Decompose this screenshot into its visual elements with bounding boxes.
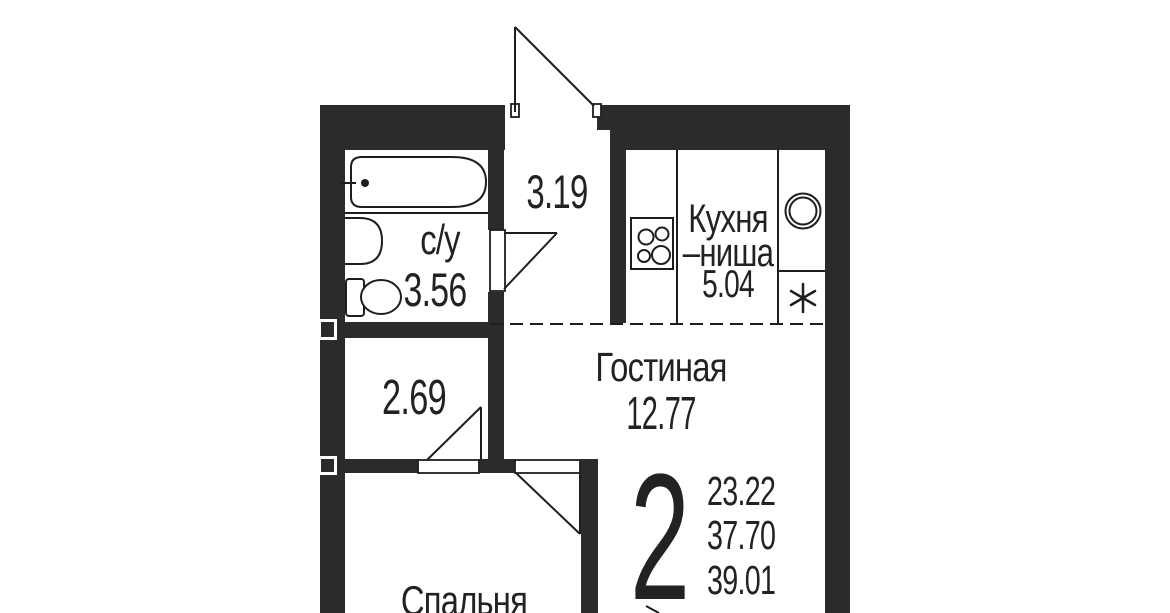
living-room-label: Гостиная — [595, 343, 726, 389]
bathroom-label: с/у — [420, 216, 460, 263]
stove-burner-icon — [652, 246, 670, 264]
hallway-area: 3.19 — [526, 165, 587, 218]
wall-corridor-bottom-a — [336, 459, 418, 473]
bathroom-door-swing — [504, 233, 557, 289]
kitchen-sink-icon-inner — [790, 198, 817, 225]
wall-left-exterior — [320, 105, 345, 613]
corridor-door-opening — [418, 460, 479, 473]
washing-machine-icon — [791, 284, 815, 312]
apartment-area: 37.70 — [707, 513, 775, 558]
bathtub-icon — [351, 157, 486, 207]
stove-burner-icon — [656, 228, 669, 241]
bedroom-door-opening — [515, 460, 580, 473]
bedroom-door-swing — [516, 473, 580, 534]
toilet-bowl-icon — [361, 280, 401, 314]
kitchen-area: 5.04 — [702, 263, 754, 307]
floorplan-drawing: с/у 3.56 3.19 Кухня –ниша 5.04 Гостиная … — [0, 0, 1170, 613]
stove-burner-icon — [639, 230, 654, 245]
washbasin-icon — [345, 218, 382, 264]
apartment-summary: 2 23.22 37.70 39.01 — [630, 438, 775, 613]
bathroom-door-opening — [490, 230, 505, 291]
wall-kitchen-left — [610, 128, 626, 323]
wall-bedroom-right — [581, 459, 598, 613]
stove-burner-icon — [638, 250, 650, 262]
rooms-count: 2 — [630, 438, 689, 613]
living-area-total: 23.22 — [707, 469, 775, 514]
wall-bathroom-bottom — [336, 322, 504, 338]
bathtub-drain-icon — [361, 179, 369, 187]
wall-joint-block — [321, 322, 334, 337]
entrance-door-swing — [515, 27, 594, 106]
wall-top-left — [320, 105, 505, 150]
wall-corridor-bottom-b — [479, 459, 515, 473]
wall-right-exterior — [825, 105, 850, 613]
wall-top-right-thick — [610, 105, 850, 150]
living-room-area: 12.77 — [626, 388, 695, 439]
bathroom-area: 3.56 — [404, 264, 467, 317]
wall-bathroom-right-lower — [488, 292, 504, 462]
corridor-area: 2.69 — [382, 370, 446, 424]
total-area: 39.01 — [707, 558, 775, 603]
wall-joint-block — [321, 459, 334, 472]
entrance-door-jamb-right — [593, 104, 601, 117]
wall-bathroom-right-upper — [488, 150, 504, 230]
bedroom-label: Спальня — [401, 577, 527, 613]
floorplan-canvas: с/у 3.56 3.19 Кухня –ниша 5.04 Гостиная … — [0, 0, 1170, 613]
